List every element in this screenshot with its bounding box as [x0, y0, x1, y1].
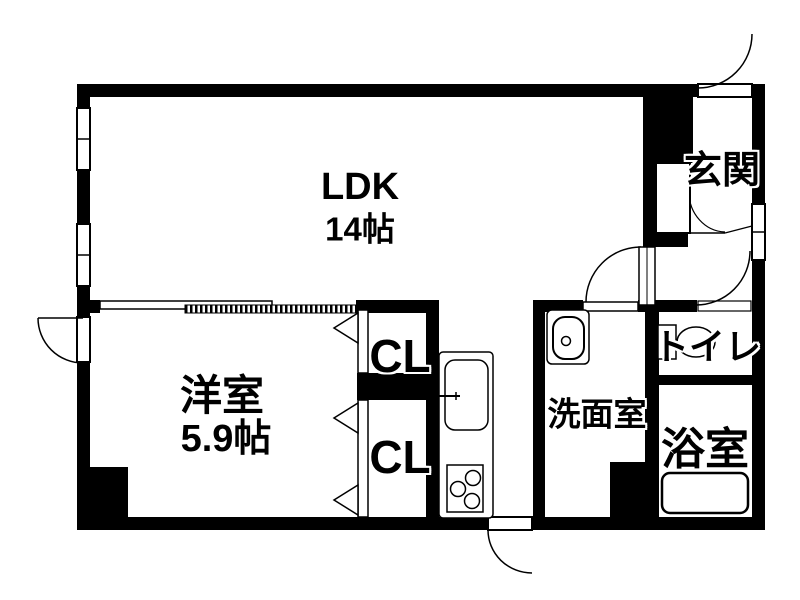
room-label-washroom: 洗面室 [548, 398, 647, 431]
wall-washroom-block [610, 462, 648, 517]
toilet-door-arc [696, 251, 750, 305]
floorplan-drawing [0, 0, 800, 600]
left-door-slot [77, 317, 90, 362]
wall-genkan-band [643, 233, 688, 247]
wall-right-lower [752, 260, 765, 517]
room-label-bathroom: 浴室 [661, 428, 749, 472]
stove-burner-1 [466, 471, 481, 486]
entrance-door-leaf [698, 84, 752, 97]
sliding-panel-far-hatched [185, 305, 357, 313]
folding-door-triangle-2 [334, 403, 358, 433]
wall-partition-west-left [77, 300, 100, 313]
wash-basin-drain [562, 337, 571, 346]
wall-genkan-column [643, 163, 656, 233]
closet-front-upper [358, 310, 368, 373]
wall-bottom-right [532, 517, 765, 530]
bathtub [662, 473, 748, 513]
room-label-closet-lower: CL [369, 434, 430, 480]
wall-washroom-left [533, 300, 545, 517]
toilet-door-leaf [698, 301, 751, 311]
room-label-western-room: 洋室 [180, 375, 264, 417]
entrance-door-arc [698, 34, 752, 88]
folding-door-triangle-3 [334, 485, 358, 515]
genkan-step-line [725, 226, 752, 233]
sliding-door-ldk-western [100, 301, 357, 313]
room-size-western-room: 5.9帖 [181, 420, 272, 458]
room-label-toilet: トイレ [653, 329, 761, 365]
wall-bottom-left [77, 517, 488, 530]
wall-top-left [77, 84, 698, 97]
stove-burner-3 [465, 494, 480, 509]
wall-toilet-bath-divider [645, 375, 765, 385]
room-label-entrance: 玄関 [684, 152, 760, 190]
wall-left-4 [77, 362, 90, 517]
wall-left-2 [77, 170, 90, 224]
stove-burner-2 [451, 482, 466, 497]
closet-front-lower [358, 400, 368, 517]
closet-folding-doors [334, 310, 368, 517]
bottom-door-leaf [488, 517, 532, 530]
genkan-door-arc [689, 192, 725, 232]
room-size-ldk: 14帖 [325, 213, 395, 246]
bottom-door-arc [488, 530, 532, 573]
wall-top-right-corner [752, 84, 765, 97]
ldk-hall-door-arc [586, 247, 641, 302]
washroom-door-leaf [583, 302, 638, 311]
floorplan-canvas: LDK 14帖 洋室 5.9帖 CL CL 玄関 トイレ 洗面室 浴室 [0, 0, 800, 600]
wall-left-1 [77, 97, 90, 108]
room-label-ldk: LDK [321, 168, 399, 206]
wall-western-pillar [90, 467, 128, 517]
folding-door-triangle-1 [334, 313, 358, 343]
room-label-closet-upper: CL [369, 333, 430, 379]
